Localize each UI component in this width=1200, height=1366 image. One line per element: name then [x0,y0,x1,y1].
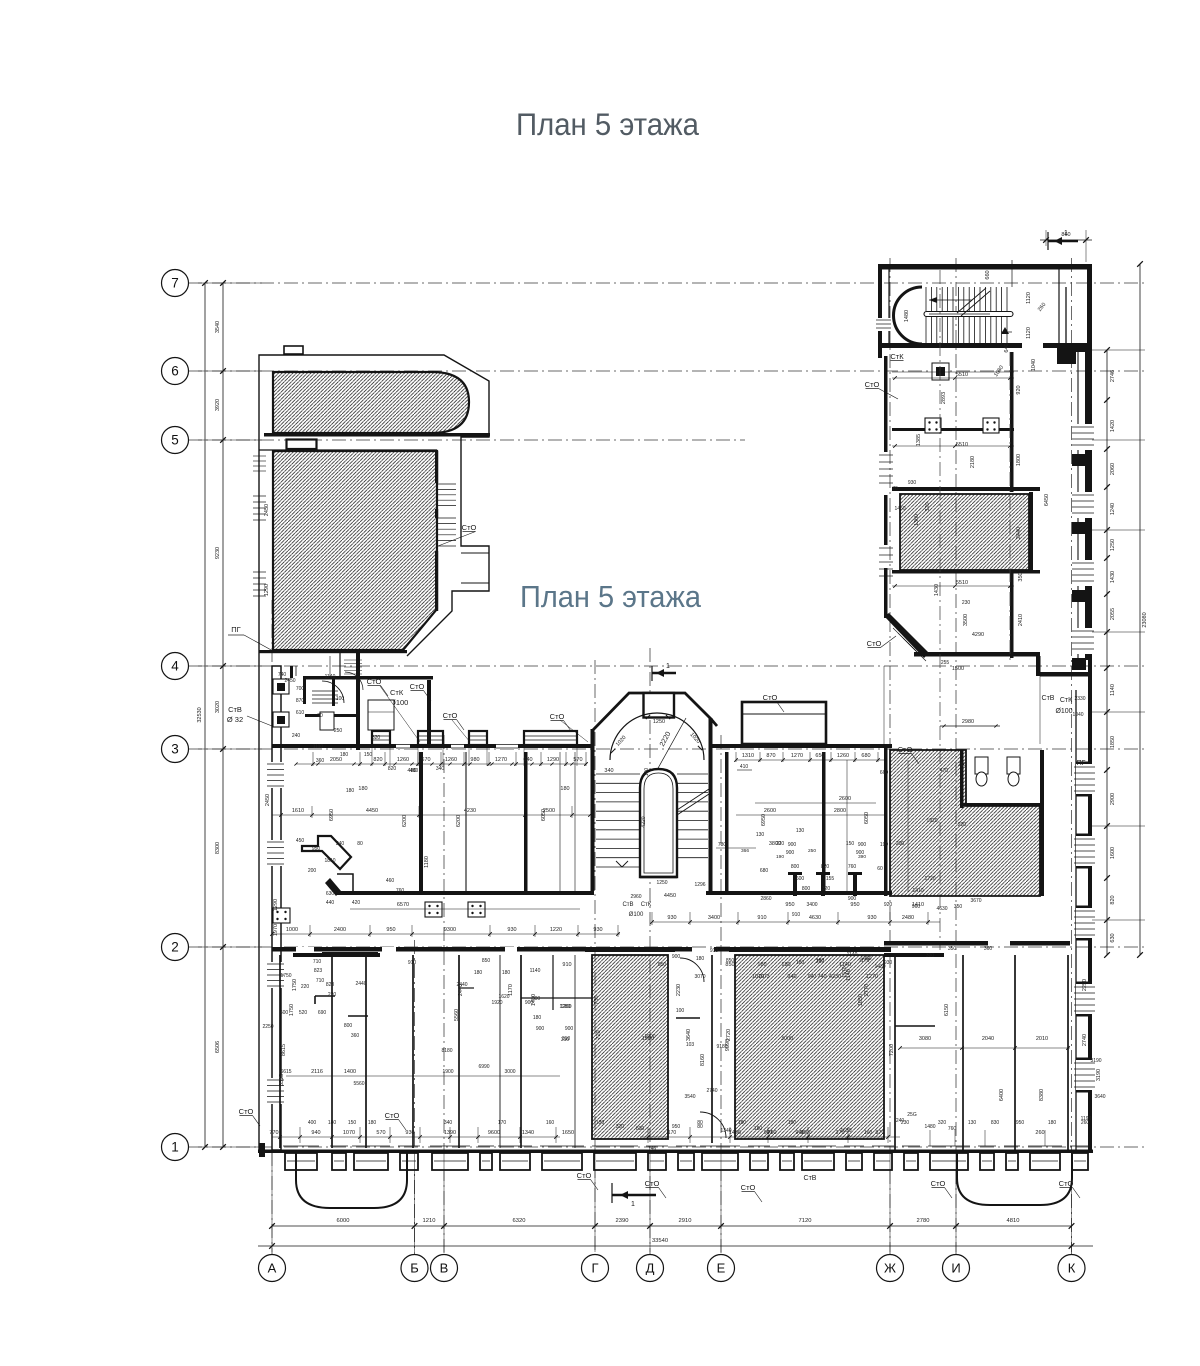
svg-text:2230: 2230 [676,984,682,996]
svg-text:900: 900 [856,850,865,856]
svg-text:1120: 1120 [1026,327,1032,339]
svg-text:760: 760 [848,864,857,870]
svg-text:6400: 6400 [999,1089,1005,1101]
svg-text:250: 250 [334,728,343,734]
svg-text:700: 700 [296,686,305,692]
svg-text:3640: 3640 [1094,1094,1105,1100]
svg-text:8160: 8160 [700,1054,706,1066]
svg-text:350: 350 [948,946,957,952]
svg-text:3190: 3190 [1090,1058,1101,1064]
svg-text:1650: 1650 [562,1130,574,1136]
svg-text:2: 2 [171,940,179,955]
svg-text:9600: 9600 [488,1130,500,1136]
svg-text:1385: 1385 [916,434,922,446]
svg-text:180: 180 [346,788,355,794]
svg-text:СтК: СтК [890,352,904,361]
svg-text:470: 470 [940,768,949,774]
svg-text:930: 930 [884,960,893,966]
svg-text:930: 930 [405,1130,414,1136]
svg-text:920: 920 [884,902,893,908]
svg-text:320: 320 [616,1124,625,1130]
svg-text:570: 570 [376,1130,385,1136]
svg-text:Г: Г [591,1261,598,1276]
svg-text:2440: 2440 [456,982,467,988]
svg-text:2480: 2480 [902,915,914,921]
svg-text:2450: 2450 [265,794,271,806]
svg-text:180: 180 [328,1120,337,1126]
svg-text:СтО: СтО [865,380,880,389]
svg-text:100: 100 [336,696,345,702]
svg-text:60: 60 [877,866,883,872]
svg-text:1290: 1290 [273,899,279,911]
svg-text:2720: 2720 [726,1029,732,1041]
svg-text:740: 740 [817,974,826,980]
svg-text:600: 600 [796,876,805,882]
svg-text:6950: 6950 [329,809,335,821]
svg-text:СтО: СтО [645,1179,660,1188]
svg-text:1270: 1270 [791,753,803,759]
svg-text:180: 180 [781,962,790,968]
svg-text:820: 820 [1110,895,1116,904]
svg-text:СтО: СтО [577,1171,592,1180]
svg-text:850: 850 [658,962,667,968]
svg-text:250: 250 [808,848,816,854]
svg-text:1000: 1000 [286,927,298,933]
svg-text:800: 800 [791,864,800,870]
svg-text:1140: 1140 [847,952,858,958]
svg-text:600: 600 [280,1010,289,1016]
svg-text:730: 730 [594,995,600,1004]
svg-text:100: 100 [676,1008,685,1014]
svg-text:32530: 32530 [197,707,203,722]
svg-text:900: 900 [786,850,795,856]
svg-text:910: 910 [562,962,571,968]
svg-text:6570: 6570 [397,902,409,908]
svg-text:2250: 2250 [262,1024,273,1030]
svg-text:450: 450 [296,838,305,844]
svg-text:6950: 6950 [761,814,767,826]
svg-text:103: 103 [686,1042,695,1048]
svg-text:310: 310 [562,1036,571,1042]
svg-text:910: 910 [710,948,719,954]
svg-text:9600: 9600 [800,1130,811,1136]
svg-text:2740: 2740 [1082,1034,1088,1046]
svg-text:1240: 1240 [1110,503,1116,515]
svg-text:680: 680 [760,868,769,874]
svg-text:1050: 1050 [858,994,864,1006]
svg-text:2960: 2960 [630,894,641,900]
svg-text:3000: 3000 [504,1069,515,1075]
svg-text:180: 180 [1048,1120,1057,1126]
svg-text:240: 240 [336,841,345,847]
svg-text:3080: 3080 [919,1036,931,1042]
svg-text:480: 480 [410,768,419,774]
svg-text:199: 199 [880,842,889,848]
svg-text:823: 823 [326,982,335,988]
svg-text:200: 200 [958,762,967,768]
svg-text:1110: 1110 [313,744,324,750]
svg-text:7: 7 [171,276,179,291]
svg-text:2910: 2910 [679,1218,692,1224]
svg-text:1070: 1070 [343,1130,355,1136]
svg-text:630: 630 [326,891,335,897]
svg-text:6050: 6050 [541,809,547,821]
svg-text:340: 340 [444,1120,453,1126]
svg-text:Ø 32: Ø 32 [227,715,243,724]
svg-text:3400: 3400 [806,902,817,908]
svg-text:320: 320 [926,953,935,959]
svg-text:СтК: СтК [1060,697,1073,704]
svg-text:СтО: СтО [1059,1179,1074,1188]
svg-text:2900: 2900 [1110,793,1116,805]
svg-text:4630: 4630 [809,915,821,921]
svg-text:4230: 4230 [464,808,476,814]
svg-text:6615: 6615 [280,1069,291,1075]
svg-text:155: 155 [826,876,835,882]
svg-text:6990: 6990 [478,1064,489,1070]
svg-text:1180: 1180 [424,856,430,868]
svg-text:3540: 3540 [215,321,221,333]
svg-text:1: 1 [171,1140,179,1155]
svg-text:9300: 9300 [444,927,456,933]
svg-text:240: 240 [896,1118,905,1124]
svg-text:33540: 33540 [652,1238,668,1244]
svg-text:5560: 5560 [454,1009,460,1021]
svg-text:СтО: СтО [443,711,458,720]
svg-text:4810: 4810 [1007,1218,1020,1224]
svg-text:СтВ: СтВ [1042,695,1055,702]
svg-text:3020: 3020 [215,701,221,713]
svg-text:1296: 1296 [694,882,705,888]
svg-text:СтО: СтО [898,745,913,754]
svg-text:800: 800 [344,1023,353,1029]
svg-text:СтО: СтО [741,1183,756,1192]
svg-text:2450: 2450 [264,504,270,516]
svg-text:180: 180 [474,970,483,976]
svg-text:1750: 1750 [289,1004,295,1016]
svg-text:823: 823 [314,968,323,974]
svg-text:680: 680 [861,753,870,759]
svg-text:2770: 2770 [864,984,870,996]
svg-text:1650: 1650 [840,1128,851,1134]
svg-text:8180: 8180 [441,1048,452,1054]
svg-text:2250: 2250 [1082,979,1088,991]
svg-text:180: 180 [368,1120,377,1126]
svg-text:410: 410 [740,764,749,770]
svg-text:180: 180 [757,962,766,968]
svg-text:900: 900 [672,954,681,960]
svg-text:2746: 2746 [1110,370,1116,382]
svg-text:260: 260 [1035,1130,1044,1136]
svg-text:В: В [440,1261,449,1276]
svg-text:23080: 23080 [1142,612,1148,627]
svg-text:170: 170 [668,1130,677,1136]
svg-text:3400: 3400 [708,915,720,921]
svg-text:710: 710 [313,959,322,965]
svg-text:1140: 1140 [530,968,541,974]
svg-text:6200: 6200 [402,815,408,827]
svg-text:6: 6 [171,364,179,379]
svg-text:2410: 2410 [1018,614,1024,626]
svg-text:1920: 1920 [926,818,937,824]
svg-text:870: 870 [766,753,775,759]
svg-text:1250: 1250 [653,719,665,725]
svg-text:240: 240 [292,733,301,739]
svg-text:СтО: СтО [385,1111,400,1120]
svg-text:1800: 1800 [1016,454,1022,466]
svg-text:180: 180 [796,960,805,966]
svg-text:90: 90 [317,713,323,719]
svg-text:25G: 25G [907,1112,917,1118]
svg-text:2600: 2600 [764,808,776,814]
svg-text:650: 650 [815,753,824,759]
svg-text:350: 350 [954,904,963,910]
svg-text:870: 870 [296,698,305,704]
svg-text:320: 320 [938,1120,947,1126]
svg-text:160: 160 [864,1130,873,1136]
svg-text:950: 950 [386,927,395,933]
svg-text:4290: 4290 [972,632,984,638]
svg-text:2800: 2800 [834,808,846,814]
svg-text:1750: 1750 [280,973,291,979]
svg-text:400: 400 [308,1120,317,1126]
svg-text:1720: 1720 [924,876,935,882]
svg-text:1290: 1290 [264,584,270,596]
svg-text:340: 340 [604,768,613,774]
svg-text:930: 930 [867,915,876,921]
svg-text:3920: 3920 [215,399,221,411]
svg-text:1210: 1210 [423,1218,436,1224]
svg-text:350: 350 [1018,572,1024,581]
svg-text:1620: 1620 [498,994,509,1000]
svg-text:930: 930 [908,480,917,486]
svg-text:1190: 1190 [1081,1116,1092,1122]
svg-text:2780: 2780 [917,1218,930,1224]
svg-text:План 5 этажа: План 5 этажа [516,106,699,142]
svg-text:8380: 8380 [1039,1089,1045,1101]
svg-text:520: 520 [299,1010,308,1016]
svg-text:1073: 1073 [758,974,769,980]
svg-text:180: 180 [738,1120,747,1126]
svg-text:920: 920 [1016,385,1022,394]
svg-text:СтО: СтО [550,712,565,721]
svg-text:1270: 1270 [866,974,878,980]
svg-text:1500: 1500 [952,666,964,672]
svg-text:130: 130 [596,1120,605,1126]
svg-text:5560: 5560 [353,1081,364,1087]
svg-text:960: 960 [912,904,921,910]
svg-text:И: И [951,1261,960,1276]
svg-text:СтК: СтК [390,688,404,697]
svg-text:1900: 1900 [442,1069,453,1075]
svg-text:5510: 5510 [956,372,968,378]
svg-text:130: 130 [756,832,765,838]
svg-text:6506: 6506 [215,1041,221,1053]
svg-text:3670: 3670 [970,898,981,904]
svg-text:900: 900 [788,842,797,848]
svg-text:6150: 6150 [944,1004,950,1016]
svg-text:1450: 1450 [894,506,905,512]
svg-text:Д: Д [646,1261,655,1276]
svg-text:2740: 2740 [706,1088,717,1094]
svg-text:1750: 1750 [292,979,298,991]
svg-text:200: 200 [896,841,905,847]
svg-text:360: 360 [316,758,325,764]
svg-text:СтО: СтО [239,1107,254,1116]
svg-text:1850: 1850 [1110,736,1116,748]
svg-text:СтВ: СтВ [804,1175,817,1182]
svg-text:900: 900 [565,1026,574,1032]
svg-text:340: 340 [436,766,445,772]
svg-text:ПГ: ПГ [231,625,240,634]
svg-text:860: 860 [1061,232,1070,238]
svg-text:1140: 1140 [846,969,852,981]
svg-text:180: 180 [502,970,511,976]
svg-text:1600: 1600 [1110,847,1116,859]
svg-text:820: 820 [821,864,830,870]
svg-text:80: 80 [697,1124,703,1130]
svg-text:1430: 1430 [1110,571,1116,583]
svg-text:СтО: СтО [410,682,425,691]
svg-text:8300: 8300 [215,842,221,854]
svg-text:6320: 6320 [513,1218,526,1224]
svg-text:1970: 1970 [273,924,279,936]
svg-text:850: 850 [726,958,735,964]
svg-text:5515: 5515 [279,1074,285,1086]
svg-text:190: 190 [776,854,784,860]
svg-text:100: 100 [644,768,650,777]
svg-text:4450: 4450 [664,893,676,899]
svg-text:Ø100: Ø100 [1055,708,1072,715]
svg-text:4: 4 [171,659,179,674]
svg-text:930: 930 [507,927,516,933]
svg-text:730: 730 [718,842,727,848]
svg-text:820: 820 [373,757,382,763]
svg-text:1310: 1310 [742,753,754,759]
svg-text:2055: 2055 [1110,608,1116,620]
svg-text:1480: 1480 [924,1124,935,1130]
svg-text:950: 950 [850,902,859,908]
svg-text:640: 640 [1004,343,1010,352]
svg-text:1610: 1610 [292,808,304,814]
svg-text:760: 760 [948,1126,957,1132]
svg-text:2040: 2040 [982,1036,994,1042]
svg-text:70: 70 [892,486,898,492]
svg-text:150: 150 [364,752,373,758]
svg-text:1250: 1250 [656,880,667,886]
svg-text:900: 900 [764,1130,773,1136]
svg-text:СтО: СтО [462,523,477,532]
svg-text:1400: 1400 [344,1069,356,1075]
svg-text:870: 870 [875,1130,884,1136]
svg-text:930: 930 [593,927,602,933]
svg-text:320: 320 [925,502,931,511]
svg-text:3500: 3500 [963,614,969,626]
svg-text:1260: 1260 [445,757,457,763]
svg-text:6450: 6450 [1044,494,1050,506]
svg-text:4230: 4230 [829,974,841,980]
svg-text:8615: 8615 [281,1044,287,1056]
svg-text:1040: 1040 [1031,359,1037,371]
svg-text:2980: 2980 [962,719,974,725]
svg-text:К: К [1068,1261,1076,1276]
svg-text:820: 820 [388,766,397,772]
svg-text:9180: 9180 [716,1044,727,1050]
svg-text:1480: 1480 [904,310,910,322]
svg-text:220: 220 [958,822,967,828]
svg-text:170: 170 [498,1120,507,1126]
svg-text:690: 690 [318,1010,327,1016]
svg-text:3: 3 [171,742,179,757]
svg-text:180: 180 [816,958,825,964]
svg-text:1410: 1410 [912,888,923,894]
svg-text:6200: 6200 [456,815,462,827]
svg-text:760: 760 [396,888,405,894]
svg-text:670: 670 [421,757,430,763]
svg-text:2893: 2893 [941,392,947,404]
svg-text:146: 146 [648,1146,657,1152]
svg-text:1810: 1810 [324,858,335,864]
svg-text:2180: 2180 [970,456,976,468]
svg-text:1920: 1920 [491,1000,502,1006]
svg-text:710: 710 [316,978,325,984]
svg-text:1270: 1270 [495,757,507,763]
svg-text:180: 180 [696,956,705,962]
svg-text:950: 950 [312,846,321,852]
svg-text:1260: 1260 [560,1004,571,1010]
svg-text:1340: 1340 [720,1128,731,1134]
svg-text:940: 940 [808,974,817,980]
svg-text:255: 255 [941,660,950,666]
svg-text:2400: 2400 [334,927,346,933]
svg-text:СтВ: СтВ [622,902,633,908]
svg-text:80: 80 [357,841,363,847]
svg-text:230: 230 [962,600,971,606]
svg-text:СтО: СтО [931,1179,946,1188]
svg-text:СтО: СтО [763,693,778,702]
svg-text:360: 360 [351,1033,360,1039]
svg-text:770: 770 [269,1130,278,1136]
svg-text:4220: 4220 [641,816,647,827]
svg-text:900: 900 [536,1026,545,1032]
svg-text:1040: 1040 [1072,712,1083,718]
svg-text:720: 720 [596,1030,602,1039]
svg-text:2440: 2440 [355,981,366,987]
svg-text:180: 180 [358,786,367,792]
svg-text:2010: 2010 [1036,1036,1048,1042]
svg-text:930: 930 [667,915,676,921]
svg-text:5: 5 [171,433,179,448]
svg-text:150: 150 [348,1120,357,1126]
svg-text:1360: 1360 [914,514,920,526]
svg-text:950: 950 [1016,1120,1025,1126]
svg-text:440: 440 [326,900,335,906]
svg-text:640: 640 [523,757,532,763]
svg-text:180: 180 [533,1015,542,1021]
svg-text:800: 800 [802,886,811,892]
svg-text:850: 850 [482,958,491,964]
svg-text:900: 900 [848,896,857,902]
svg-text:1220: 1220 [550,927,562,933]
svg-text:3000: 3000 [781,1036,793,1042]
svg-text:910: 910 [408,960,417,966]
svg-text:2330: 2330 [1074,696,1085,702]
svg-text:420: 420 [352,900,361,906]
svg-text:910: 910 [757,915,766,921]
svg-text:1: 1 [666,663,670,670]
svg-text:900: 900 [858,842,867,848]
svg-text:160: 160 [546,1120,555,1126]
